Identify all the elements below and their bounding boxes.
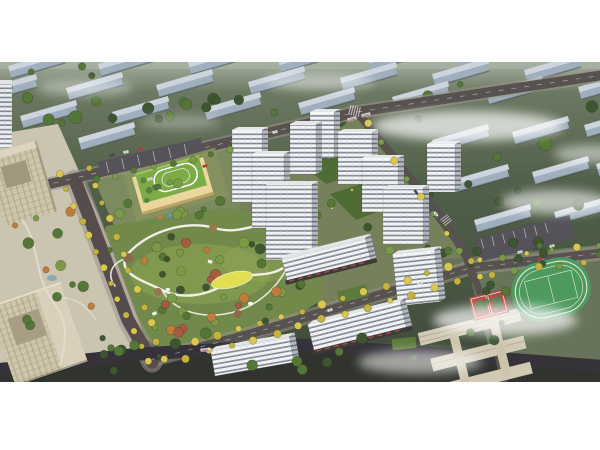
park-tree — [177, 249, 184, 256]
tree — [483, 299, 489, 305]
tree — [108, 114, 117, 123]
tree — [322, 357, 332, 367]
tree — [100, 335, 106, 341]
park-tree — [207, 313, 216, 322]
park-tree — [174, 327, 184, 337]
park-tree — [200, 328, 211, 339]
park-tree — [257, 259, 266, 268]
tree — [445, 247, 453, 255]
street-tree — [378, 139, 384, 145]
street-tree — [299, 309, 305, 315]
tree — [385, 246, 394, 255]
street-tree — [404, 176, 410, 182]
street-tree — [93, 249, 99, 255]
screenshot-canvas — [0, 0, 600, 450]
street-tree — [596, 243, 600, 249]
tree — [247, 360, 258, 371]
street-tree — [360, 288, 368, 296]
street-tree — [190, 156, 197, 163]
masterplan-rendering — [0, 62, 600, 382]
park-plaza-node — [154, 288, 162, 296]
tree — [464, 180, 472, 188]
street-tree — [92, 183, 98, 189]
park-tree — [168, 233, 175, 240]
street-tree — [70, 203, 77, 210]
tree — [12, 223, 18, 229]
tree — [489, 335, 499, 345]
tree — [69, 111, 82, 124]
street-tree — [274, 330, 282, 338]
tree — [539, 137, 553, 151]
street-tree — [63, 186, 68, 191]
street-tree — [318, 300, 326, 308]
residential-slab — [392, 246, 445, 306]
street-tree — [364, 119, 372, 127]
park-tree — [220, 294, 226, 300]
street-tree — [477, 274, 483, 280]
street-tree — [278, 314, 284, 320]
tree — [52, 292, 61, 301]
street-tree — [57, 171, 64, 178]
street-tree — [213, 331, 222, 340]
fog-patch — [373, 111, 563, 141]
street-tree — [152, 338, 159, 345]
street-tree — [208, 152, 213, 157]
park-tree — [181, 238, 190, 247]
street-tree — [85, 232, 93, 240]
residential-tower — [290, 121, 322, 174]
tree — [124, 199, 133, 208]
tree — [114, 346, 124, 356]
rendering-svg — [0, 62, 600, 382]
tree — [514, 255, 522, 263]
fog-patch — [265, 74, 375, 90]
tree — [156, 184, 161, 189]
park-canopy-structure — [166, 288, 170, 291]
street-tree — [524, 251, 529, 256]
street-tree — [125, 267, 131, 273]
street-tree — [99, 200, 104, 205]
street-tree — [407, 292, 415, 300]
park-plaza-node — [209, 224, 217, 232]
tree — [22, 92, 33, 103]
tree — [493, 153, 501, 161]
street-tree — [170, 160, 176, 166]
tree — [249, 241, 255, 247]
street-tree — [424, 270, 430, 276]
park-tree — [216, 255, 225, 264]
tree — [167, 180, 172, 185]
street-tree — [477, 257, 482, 262]
tree — [43, 267, 49, 273]
tree — [215, 196, 225, 206]
tree — [91, 97, 101, 107]
tree — [53, 228, 63, 238]
tree — [56, 260, 66, 270]
tree — [514, 187, 521, 194]
tree — [202, 103, 212, 113]
park-tree — [152, 242, 162, 252]
tree — [501, 287, 510, 296]
park-tree — [272, 287, 282, 297]
street-tree — [80, 218, 87, 225]
street-tree — [342, 311, 349, 318]
park-tree — [141, 257, 148, 264]
tree — [473, 247, 481, 255]
fog-patch — [140, 115, 220, 129]
street-tree — [236, 326, 242, 332]
street-tree — [227, 146, 234, 153]
park-tree — [167, 293, 177, 303]
tree — [201, 206, 207, 212]
street-tree — [317, 315, 325, 323]
street-tree — [130, 167, 136, 173]
tree — [508, 238, 518, 248]
tree — [100, 350, 108, 358]
park-tree — [262, 318, 269, 325]
street-tree — [121, 251, 127, 257]
tree — [327, 199, 335, 207]
park-tree — [255, 244, 265, 254]
street-tree — [257, 320, 263, 326]
fog-patch — [358, 350, 482, 374]
street-tree — [93, 176, 100, 183]
tree — [271, 109, 278, 116]
street-tree — [340, 295, 346, 301]
tree — [107, 247, 113, 253]
edge-highrise — [0, 80, 12, 148]
tree — [142, 103, 154, 115]
park-tree — [239, 237, 250, 248]
residential-tower — [427, 141, 461, 192]
street-tree — [114, 296, 120, 302]
street-tree — [123, 312, 129, 318]
tree — [22, 315, 31, 324]
tree — [170, 339, 181, 350]
street-tree — [145, 358, 152, 365]
street-tree — [148, 319, 156, 327]
tree — [539, 249, 547, 257]
tree — [28, 69, 34, 75]
tree — [457, 81, 463, 87]
street-tree — [151, 164, 156, 169]
street-tree — [489, 272, 496, 279]
street-tree — [112, 173, 118, 179]
park-tree — [161, 301, 169, 309]
street-tree — [573, 243, 581, 251]
tree — [88, 303, 95, 310]
tree — [181, 99, 192, 110]
tree — [596, 251, 600, 257]
tree — [130, 340, 140, 350]
tree — [78, 281, 89, 292]
tree — [89, 73, 96, 80]
tree — [172, 210, 182, 220]
street-tree — [134, 286, 142, 294]
street-tree — [100, 264, 107, 271]
tree — [364, 223, 372, 231]
fog-patch — [433, 305, 577, 335]
park-tree — [177, 267, 186, 276]
park-tree — [164, 256, 170, 262]
street-tree — [387, 298, 392, 303]
street-tree — [108, 281, 113, 286]
street-tree — [468, 258, 474, 264]
street-tree — [454, 278, 461, 285]
street-tree — [249, 337, 257, 345]
street-tree — [444, 263, 453, 272]
tree — [33, 215, 39, 221]
street-tree — [191, 338, 199, 346]
park-tree — [266, 304, 272, 310]
street-tree — [499, 254, 506, 261]
park-tree — [183, 312, 191, 320]
tree — [110, 367, 118, 375]
street-tree — [556, 263, 563, 270]
street-tree — [511, 267, 518, 274]
street-tree — [417, 193, 424, 200]
street-tree — [141, 304, 148, 311]
street-tree — [86, 165, 92, 171]
street-tree — [131, 328, 137, 334]
street-tree — [383, 283, 391, 291]
tree — [486, 281, 494, 289]
tree — [108, 345, 115, 352]
park-tree — [235, 303, 241, 309]
street-tree — [535, 263, 543, 271]
tree — [586, 101, 598, 113]
tree — [357, 333, 368, 344]
plaza-pond — [47, 275, 57, 281]
residential-tower — [266, 181, 318, 260]
street-tree — [364, 304, 372, 312]
park-tree — [202, 284, 209, 291]
tree — [69, 281, 75, 287]
street-tree — [229, 343, 235, 349]
tree — [59, 120, 66, 127]
tree — [115, 209, 125, 219]
street-tree — [456, 248, 463, 255]
tree — [335, 348, 343, 356]
tree — [212, 96, 220, 104]
street-tree — [390, 157, 398, 165]
tree — [23, 238, 34, 249]
tree — [43, 114, 54, 125]
street-tree — [113, 233, 120, 240]
park-tree — [159, 271, 165, 277]
tree — [173, 179, 182, 188]
street-tree — [182, 355, 190, 363]
tree — [292, 356, 302, 366]
street-tree — [404, 276, 412, 284]
park-tree — [176, 286, 184, 294]
street-tree — [581, 260, 587, 266]
tree — [195, 211, 203, 219]
street-tree — [430, 284, 438, 292]
tree — [156, 354, 161, 359]
park-tree — [297, 280, 305, 288]
street-tree — [444, 231, 449, 236]
park-plaza-node — [234, 310, 242, 318]
street-tree — [294, 322, 301, 329]
park-tree — [204, 247, 210, 253]
tree — [234, 95, 244, 105]
park-tree — [239, 293, 249, 303]
street-tree — [106, 215, 113, 222]
tree — [78, 63, 86, 71]
street-tree — [549, 248, 554, 253]
fog-patch — [37, 80, 133, 96]
bus — [200, 348, 209, 352]
